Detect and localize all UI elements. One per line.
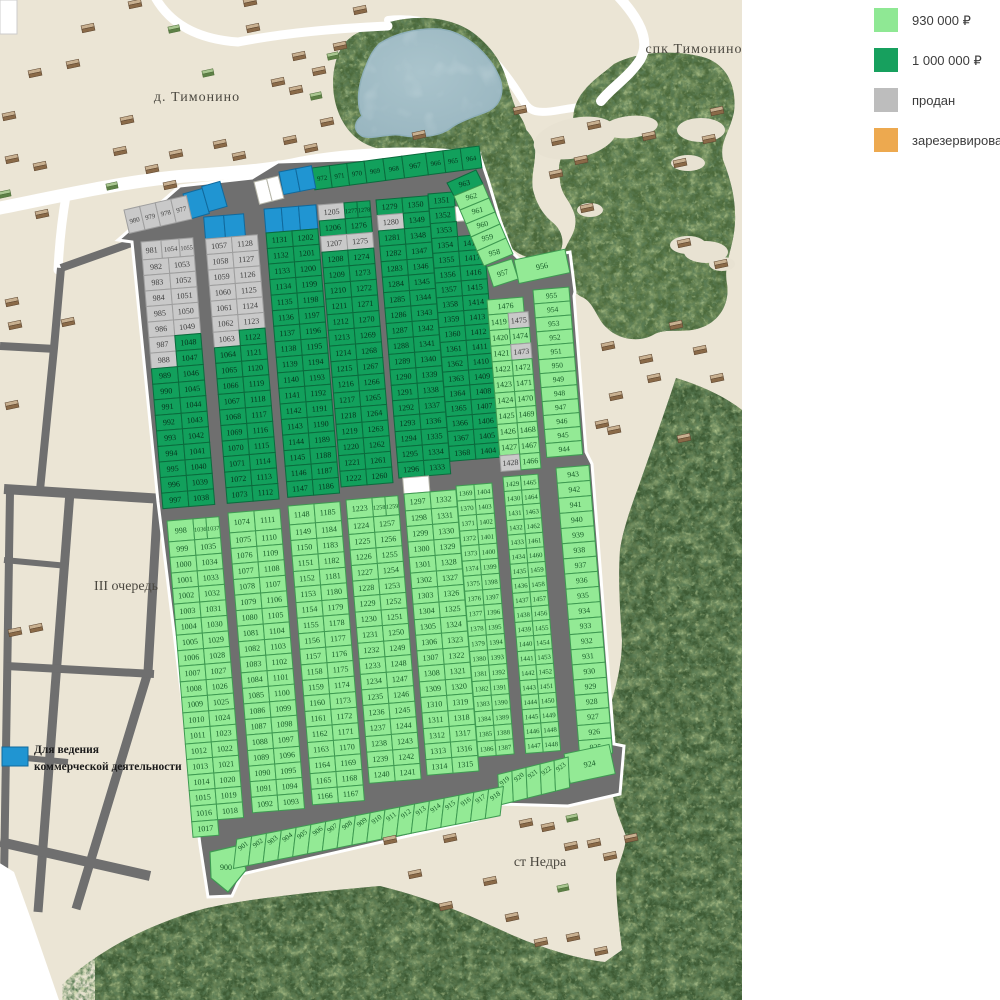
svg-text:1388: 1388 <box>496 729 511 737</box>
svg-text:1206: 1206 <box>325 223 342 233</box>
svg-text:1060: 1060 <box>215 287 232 297</box>
svg-text:1312: 1312 <box>429 730 446 740</box>
svg-text:948: 948 <box>554 388 566 398</box>
svg-text:1370: 1370 <box>460 505 475 513</box>
svg-text:1411: 1411 <box>471 342 487 352</box>
svg-text:1229: 1229 <box>359 598 376 608</box>
svg-text:1216: 1216 <box>337 379 354 389</box>
svg-text:1472: 1472 <box>514 362 531 372</box>
svg-text:1020: 1020 <box>219 775 236 785</box>
svg-text:1327: 1327 <box>442 573 459 583</box>
svg-text:1014: 1014 <box>193 777 210 787</box>
svg-text:1451: 1451 <box>539 683 553 691</box>
svg-text:1181: 1181 <box>325 571 341 581</box>
svg-text:1319: 1319 <box>452 697 469 707</box>
svg-text:1403: 1403 <box>478 503 493 511</box>
svg-text:1407: 1407 <box>476 401 493 411</box>
svg-text:950: 950 <box>551 360 563 370</box>
svg-text:1055: 1055 <box>180 244 193 252</box>
svg-text:1104: 1104 <box>269 626 285 636</box>
svg-text:992: 992 <box>163 417 176 427</box>
svg-text:1 000 000 ₽: 1 000 000 ₽ <box>912 53 982 68</box>
svg-text:1428: 1428 <box>502 458 519 468</box>
svg-text:1186: 1186 <box>318 481 334 491</box>
svg-text:1442: 1442 <box>521 670 536 678</box>
svg-text:1059: 1059 <box>213 272 230 282</box>
svg-text:1118: 1118 <box>250 394 266 404</box>
svg-text:1212: 1212 <box>332 316 349 326</box>
svg-text:1177: 1177 <box>330 633 346 643</box>
svg-text:1277: 1277 <box>345 207 358 215</box>
svg-text:1344: 1344 <box>415 292 432 302</box>
svg-text:1307: 1307 <box>422 653 439 663</box>
svg-text:1253: 1253 <box>384 581 401 591</box>
svg-text:1252: 1252 <box>385 596 402 606</box>
svg-text:1076: 1076 <box>236 550 253 560</box>
svg-text:1247: 1247 <box>392 674 409 684</box>
svg-text:1134: 1134 <box>275 281 291 291</box>
svg-text:1326: 1326 <box>443 588 460 598</box>
svg-text:926: 926 <box>588 727 600 737</box>
svg-text:1195: 1195 <box>306 341 322 351</box>
svg-text:1288: 1288 <box>393 341 410 351</box>
svg-text:930 000 ₽: 930 000 ₽ <box>912 13 971 28</box>
svg-text:953: 953 <box>548 319 560 329</box>
svg-text:985: 985 <box>154 308 167 318</box>
svg-text:1264: 1264 <box>366 408 383 418</box>
svg-text:1430: 1430 <box>507 495 522 503</box>
svg-text:1207: 1207 <box>326 238 343 248</box>
svg-text:1168: 1168 <box>341 773 357 783</box>
svg-text:1456: 1456 <box>534 610 549 618</box>
svg-text:1082: 1082 <box>244 643 261 653</box>
svg-text:1069: 1069 <box>226 427 243 437</box>
svg-text:1032: 1032 <box>204 588 221 598</box>
svg-text:1224: 1224 <box>353 521 370 531</box>
svg-text:1397: 1397 <box>485 594 500 602</box>
svg-text:1467: 1467 <box>521 440 538 450</box>
svg-text:1308: 1308 <box>423 668 440 678</box>
svg-text:984: 984 <box>152 293 165 303</box>
svg-text:1436: 1436 <box>514 582 529 590</box>
svg-text:1396: 1396 <box>486 609 501 617</box>
svg-text:1192: 1192 <box>310 388 326 398</box>
svg-text:1155: 1155 <box>303 620 319 630</box>
svg-text:1474: 1474 <box>512 331 529 341</box>
svg-text:1341: 1341 <box>419 339 436 349</box>
svg-text:927: 927 <box>587 712 599 722</box>
svg-text:965: 965 <box>448 157 460 165</box>
svg-text:1008: 1008 <box>185 684 202 694</box>
svg-text:1235: 1235 <box>367 692 384 702</box>
svg-text:1114: 1114 <box>255 456 271 466</box>
svg-text:д. Тимонино: д. Тимонино <box>154 90 240 105</box>
svg-text:спк Тимонино: спк Тимонино <box>645 42 742 57</box>
svg-text:1374: 1374 <box>465 565 480 573</box>
svg-text:1458: 1458 <box>531 581 546 589</box>
svg-text:1380: 1380 <box>472 655 487 663</box>
svg-text:1086: 1086 <box>249 706 266 716</box>
svg-text:1251: 1251 <box>386 612 403 622</box>
svg-text:1039: 1039 <box>192 477 209 487</box>
svg-text:1088: 1088 <box>252 737 269 747</box>
svg-text:1464: 1464 <box>524 494 539 502</box>
svg-text:1128: 1128 <box>237 239 253 249</box>
svg-text:966: 966 <box>430 160 442 168</box>
svg-text:1081: 1081 <box>243 628 260 638</box>
svg-text:1237: 1237 <box>369 723 386 733</box>
svg-text:1174: 1174 <box>334 680 350 690</box>
svg-text:1465: 1465 <box>523 479 538 487</box>
svg-text:1358: 1358 <box>442 299 459 309</box>
svg-text:1434: 1434 <box>511 553 526 561</box>
svg-text:1287: 1287 <box>391 325 408 335</box>
svg-text:1294: 1294 <box>400 433 417 443</box>
svg-text:1182: 1182 <box>323 556 339 566</box>
svg-text:1303: 1303 <box>417 590 434 600</box>
svg-text:1460: 1460 <box>529 552 544 560</box>
svg-text:1219: 1219 <box>341 426 358 436</box>
svg-text:1440: 1440 <box>519 641 534 649</box>
svg-text:1283: 1283 <box>386 263 403 273</box>
svg-text:1015: 1015 <box>194 792 211 802</box>
svg-text:1462: 1462 <box>526 523 541 531</box>
svg-text:1454: 1454 <box>536 639 551 647</box>
svg-text:933: 933 <box>579 621 591 631</box>
svg-text:1468: 1468 <box>519 425 536 435</box>
svg-text:1220: 1220 <box>343 442 360 452</box>
svg-text:1132: 1132 <box>273 250 289 260</box>
svg-text:1420: 1420 <box>492 333 509 343</box>
svg-text:1305: 1305 <box>420 621 437 631</box>
svg-text:1375: 1375 <box>466 580 481 588</box>
svg-text:1179: 1179 <box>327 602 343 612</box>
svg-text:1187: 1187 <box>316 466 332 476</box>
svg-text:Для ведения: Для ведения <box>34 744 99 756</box>
svg-text:1433: 1433 <box>510 539 525 547</box>
svg-text:1441: 1441 <box>520 655 534 663</box>
svg-text:1274: 1274 <box>353 252 370 262</box>
svg-text:1096: 1096 <box>279 750 296 760</box>
svg-text:1346: 1346 <box>412 261 429 271</box>
svg-text:1359: 1359 <box>443 314 460 324</box>
svg-text:1286: 1286 <box>390 310 407 320</box>
svg-text:1117: 1117 <box>251 410 267 420</box>
svg-text:1470: 1470 <box>517 393 534 403</box>
svg-text:1379: 1379 <box>471 640 486 648</box>
svg-text:1050: 1050 <box>177 306 194 316</box>
svg-text:937: 937 <box>574 560 586 570</box>
svg-text:1035: 1035 <box>200 541 217 551</box>
svg-text:1196: 1196 <box>305 326 321 336</box>
svg-text:1336: 1336 <box>425 416 442 426</box>
svg-text:1222: 1222 <box>345 473 362 483</box>
svg-text:1150: 1150 <box>296 542 312 552</box>
svg-text:1052: 1052 <box>175 275 192 285</box>
svg-text:1218: 1218 <box>340 410 357 420</box>
svg-text:1011: 1011 <box>189 730 205 740</box>
svg-text:1027: 1027 <box>210 666 227 676</box>
svg-text:1061: 1061 <box>216 303 233 313</box>
svg-text:1352: 1352 <box>434 210 451 220</box>
svg-text:1162: 1162 <box>312 729 328 739</box>
svg-text:1085: 1085 <box>248 690 265 700</box>
svg-text:982: 982 <box>150 262 163 272</box>
svg-text:967: 967 <box>409 160 422 170</box>
svg-text:1445: 1445 <box>525 713 540 721</box>
svg-text:1406: 1406 <box>477 416 494 426</box>
svg-text:1231: 1231 <box>362 629 379 639</box>
svg-text:1037: 1037 <box>207 525 220 533</box>
svg-text:1063: 1063 <box>218 334 235 344</box>
svg-text:1160: 1160 <box>309 698 325 708</box>
svg-text:1395: 1395 <box>488 624 503 632</box>
svg-text:971: 971 <box>334 172 345 180</box>
svg-text:1053: 1053 <box>174 259 191 269</box>
svg-text:970: 970 <box>351 170 363 178</box>
svg-text:954: 954 <box>547 305 559 315</box>
svg-text:1180: 1180 <box>326 587 342 597</box>
svg-text:1389: 1389 <box>495 714 510 722</box>
svg-text:1314: 1314 <box>431 761 448 771</box>
svg-text:949: 949 <box>552 374 564 384</box>
svg-text:968: 968 <box>388 165 400 173</box>
svg-text:1427: 1427 <box>501 442 518 452</box>
svg-text:1271: 1271 <box>357 299 374 309</box>
svg-text:1280: 1280 <box>383 217 400 227</box>
svg-text:1350: 1350 <box>407 199 424 209</box>
svg-text:931: 931 <box>582 651 594 661</box>
svg-text:1248: 1248 <box>390 658 407 668</box>
svg-text:1446: 1446 <box>526 728 541 736</box>
svg-text:1367: 1367 <box>453 433 470 443</box>
svg-text:1161: 1161 <box>310 713 326 723</box>
svg-text:коммерческой деятельности: коммерческой деятельности <box>34 761 182 773</box>
svg-text:1444: 1444 <box>523 699 538 707</box>
svg-text:1452: 1452 <box>538 668 553 676</box>
svg-text:1217: 1217 <box>339 395 356 405</box>
svg-text:1340: 1340 <box>420 354 437 364</box>
svg-text:991: 991 <box>161 402 174 412</box>
svg-text:1164: 1164 <box>314 760 330 770</box>
svg-text:1381: 1381 <box>473 670 487 678</box>
svg-text:1100: 1100 <box>274 688 290 698</box>
svg-text:1170: 1170 <box>339 742 355 752</box>
svg-text:1026: 1026 <box>211 681 228 691</box>
svg-text:1347: 1347 <box>411 246 428 256</box>
svg-text:1158: 1158 <box>306 667 322 677</box>
svg-text:1373: 1373 <box>464 550 479 558</box>
svg-text:1386: 1386 <box>480 746 495 754</box>
svg-text:1457: 1457 <box>532 596 547 604</box>
svg-text:1073: 1073 <box>231 489 248 499</box>
svg-text:1031: 1031 <box>205 604 222 614</box>
svg-text:1024: 1024 <box>214 712 231 722</box>
svg-text:1408: 1408 <box>475 386 492 396</box>
svg-text:1007: 1007 <box>184 668 201 678</box>
svg-text:1152: 1152 <box>299 573 315 583</box>
svg-text:1273: 1273 <box>354 268 371 278</box>
svg-text:1405: 1405 <box>479 431 496 441</box>
svg-text:1356: 1356 <box>439 270 456 280</box>
svg-text:1343: 1343 <box>416 308 433 318</box>
svg-text:936: 936 <box>576 575 588 585</box>
svg-text:1368: 1368 <box>454 448 471 458</box>
svg-text:932: 932 <box>581 636 593 646</box>
svg-text:1183: 1183 <box>322 540 338 550</box>
svg-text:1301: 1301 <box>414 559 431 569</box>
svg-text:1005: 1005 <box>182 637 199 647</box>
svg-text:1101: 1101 <box>272 672 288 682</box>
svg-text:1092: 1092 <box>257 799 274 809</box>
svg-text:1255: 1255 <box>381 550 398 560</box>
svg-text:1364: 1364 <box>449 388 466 398</box>
svg-text:1290: 1290 <box>395 372 412 382</box>
svg-text:997: 997 <box>169 495 182 505</box>
svg-text:1151: 1151 <box>298 558 314 568</box>
svg-text:1448: 1448 <box>544 741 559 749</box>
svg-text:1466: 1466 <box>522 456 539 466</box>
svg-text:1330: 1330 <box>438 526 455 536</box>
svg-text:1066: 1066 <box>222 381 239 391</box>
svg-text:1438: 1438 <box>516 612 531 620</box>
svg-text:1176: 1176 <box>331 649 347 659</box>
svg-text:1284: 1284 <box>388 279 405 289</box>
svg-text:1000: 1000 <box>175 559 192 569</box>
svg-text:1109: 1109 <box>262 548 278 558</box>
svg-text:1234: 1234 <box>366 676 383 686</box>
svg-text:1269: 1269 <box>359 330 376 340</box>
svg-text:1320: 1320 <box>451 682 468 692</box>
svg-text:1153: 1153 <box>300 589 316 599</box>
svg-text:1233: 1233 <box>364 661 381 671</box>
svg-text:1402: 1402 <box>479 518 494 526</box>
svg-text:1354: 1354 <box>437 240 454 250</box>
svg-text:1259: 1259 <box>386 503 399 511</box>
svg-text:983: 983 <box>151 277 164 287</box>
svg-text:1404: 1404 <box>477 488 492 496</box>
svg-text:1239: 1239 <box>372 754 389 764</box>
svg-text:1435: 1435 <box>513 568 528 576</box>
svg-text:1036: 1036 <box>194 526 207 534</box>
svg-text:1136: 1136 <box>278 312 294 322</box>
svg-text:1193: 1193 <box>309 372 325 382</box>
svg-text:1382: 1382 <box>475 685 490 693</box>
svg-text:1046: 1046 <box>183 368 200 378</box>
svg-text:1400: 1400 <box>482 549 497 557</box>
svg-text:1064: 1064 <box>220 350 237 360</box>
svg-text:1329: 1329 <box>439 542 456 552</box>
svg-text:1378: 1378 <box>470 625 485 633</box>
svg-text:1178: 1178 <box>329 618 345 628</box>
svg-text:1415: 1415 <box>466 282 483 292</box>
svg-text:955: 955 <box>546 291 558 301</box>
svg-text:1369: 1369 <box>459 490 474 498</box>
svg-text:1108: 1108 <box>264 564 280 574</box>
svg-text:1262: 1262 <box>368 440 385 450</box>
svg-text:1353: 1353 <box>436 225 453 235</box>
svg-text:1338: 1338 <box>422 385 439 395</box>
svg-text:934: 934 <box>578 606 590 616</box>
svg-text:1142: 1142 <box>285 406 301 416</box>
svg-text:1103: 1103 <box>270 641 286 651</box>
svg-text:1121: 1121 <box>246 347 262 357</box>
svg-text:1292: 1292 <box>398 402 415 412</box>
svg-text:1184: 1184 <box>321 524 337 534</box>
svg-text:1437: 1437 <box>515 597 530 605</box>
svg-text:1125: 1125 <box>241 285 257 295</box>
svg-text:1416: 1416 <box>465 267 482 277</box>
svg-text:951: 951 <box>550 346 562 356</box>
svg-text:1230: 1230 <box>360 614 377 624</box>
svg-text:1295: 1295 <box>402 449 419 459</box>
svg-text:1133: 1133 <box>274 266 290 276</box>
svg-text:1127: 1127 <box>238 254 254 264</box>
svg-text:1097: 1097 <box>277 735 294 745</box>
svg-text:1476: 1476 <box>497 301 514 311</box>
svg-text:929: 929 <box>584 681 596 691</box>
svg-text:1021: 1021 <box>218 759 235 769</box>
svg-text:1240: 1240 <box>373 769 390 779</box>
svg-text:1363: 1363 <box>448 373 465 383</box>
svg-text:972: 972 <box>317 175 329 183</box>
svg-text:1226: 1226 <box>355 552 372 562</box>
svg-text:1360: 1360 <box>444 329 461 339</box>
svg-text:1296: 1296 <box>403 464 420 474</box>
svg-text:1448: 1448 <box>543 726 558 734</box>
svg-text:1210: 1210 <box>330 285 347 295</box>
svg-text:1144: 1144 <box>288 437 304 447</box>
svg-text:1345: 1345 <box>414 277 431 287</box>
svg-text:1163: 1163 <box>313 744 329 754</box>
svg-text:1072: 1072 <box>230 474 247 484</box>
svg-text:1322: 1322 <box>448 650 465 660</box>
svg-text:1173: 1173 <box>335 696 351 706</box>
svg-text:987: 987 <box>156 340 169 350</box>
svg-text:1043: 1043 <box>186 415 203 425</box>
svg-text:1256: 1256 <box>380 534 397 544</box>
svg-text:1189: 1189 <box>314 435 330 445</box>
svg-text:940: 940 <box>571 515 583 525</box>
svg-text:1047: 1047 <box>181 353 198 363</box>
svg-text:1299: 1299 <box>412 528 429 538</box>
svg-text:995: 995 <box>166 464 179 474</box>
svg-text:1236: 1236 <box>368 707 385 717</box>
svg-text:1357: 1357 <box>441 284 458 294</box>
svg-text:1362: 1362 <box>447 359 464 369</box>
svg-text:1432: 1432 <box>509 524 524 532</box>
svg-text:1107: 1107 <box>265 579 281 589</box>
svg-text:1317: 1317 <box>454 728 471 738</box>
svg-text:1223: 1223 <box>351 503 368 513</box>
svg-text:1249: 1249 <box>389 643 406 653</box>
svg-text:1304: 1304 <box>418 606 435 616</box>
svg-text:1302: 1302 <box>416 575 433 585</box>
svg-text:1261: 1261 <box>370 455 387 465</box>
svg-text:1449: 1449 <box>542 712 557 720</box>
svg-text:1067: 1067 <box>224 396 241 406</box>
svg-text:1169: 1169 <box>340 758 356 768</box>
svg-text:1422: 1422 <box>494 364 511 374</box>
svg-text:1461: 1461 <box>528 537 542 545</box>
svg-text:ст Недра: ст Недра <box>514 855 567 870</box>
svg-text:1250: 1250 <box>388 627 405 637</box>
svg-text:945: 945 <box>557 430 569 440</box>
svg-text:1404: 1404 <box>480 446 497 456</box>
svg-text:1276: 1276 <box>350 220 367 230</box>
svg-text:1309: 1309 <box>425 684 442 694</box>
svg-text:1228: 1228 <box>358 583 375 593</box>
